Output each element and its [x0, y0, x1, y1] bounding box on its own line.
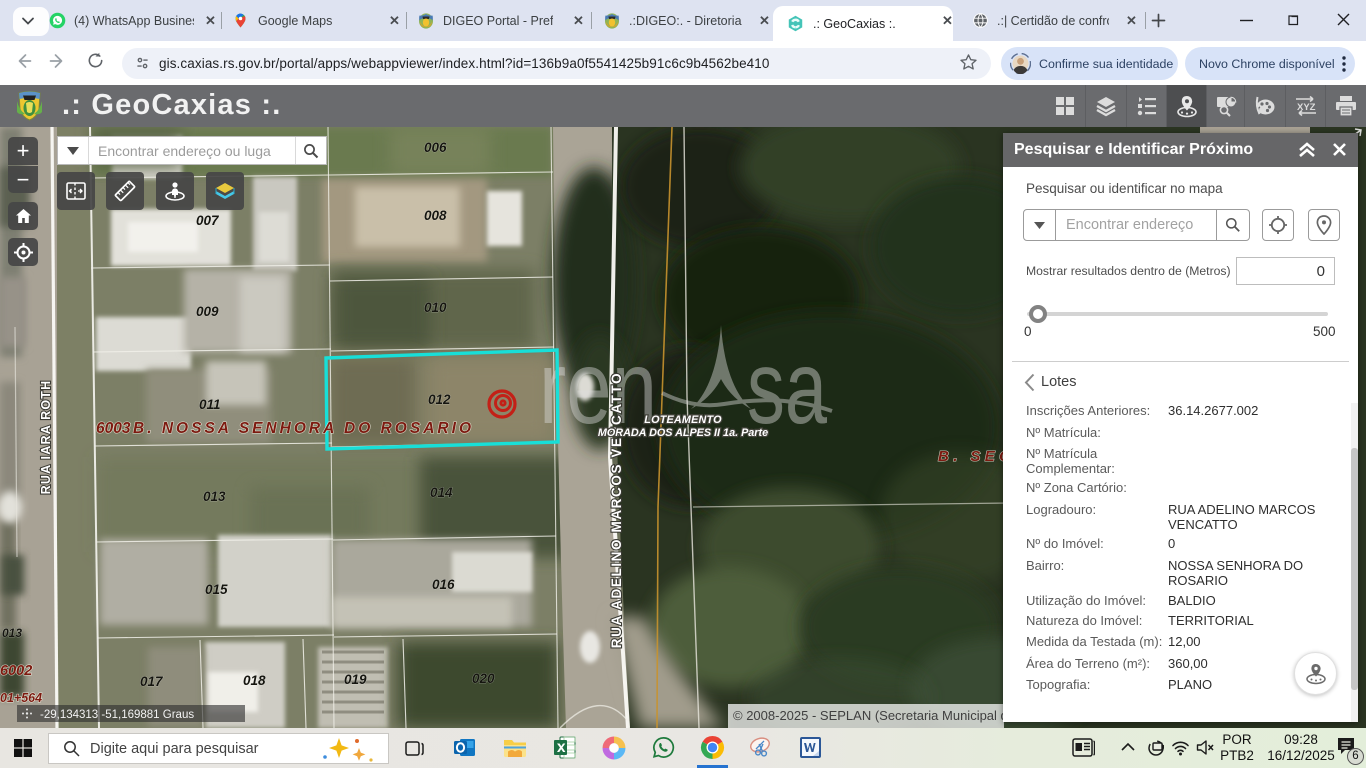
svg-text:© 2008-2025 - SEPLAN (Secretar: © 2008-2025 - SEPLAN (Secretaria Municip… — [733, 708, 1008, 723]
svg-text:-29,134313 -51,169881 Graus: -29,134313 -51,169881 Graus — [40, 709, 194, 721]
svg-text:013: 013 — [2, 626, 22, 640]
svg-text:LOTEAMENTO: LOTEAMENTO — [644, 414, 722, 426]
svg-text:RUA ADELINO MARCOS VENCATTO: RUA ADELINO MARCOS VENCATTO — [609, 372, 624, 648]
svg-text:009: 009 — [196, 304, 219, 319]
svg-text:015: 015 — [205, 582, 228, 597]
svg-text:018: 018 — [243, 673, 266, 688]
svg-text:013: 013 — [203, 489, 226, 504]
svg-text:011: 011 — [199, 397, 221, 412]
svg-text:01+564: 01+564 — [0, 691, 42, 705]
svg-text:RUA IARA ROTH: RUA IARA ROTH — [39, 380, 53, 495]
svg-text:007: 007 — [196, 213, 220, 228]
svg-text:006: 006 — [424, 140, 447, 155]
svg-text:012: 012 — [428, 392, 451, 407]
svg-text:020: 020 — [472, 671, 495, 686]
svg-text:6002: 6002 — [0, 663, 32, 679]
svg-text:019: 019 — [344, 672, 367, 687]
svg-text:016: 016 — [432, 577, 455, 592]
svg-text:014: 014 — [430, 485, 453, 500]
svg-text:008: 008 — [424, 208, 447, 223]
svg-text:017: 017 — [140, 674, 164, 689]
svg-text:6003: 6003 — [96, 420, 131, 437]
svg-text:010: 010 — [424, 300, 447, 315]
svg-text:MORADA DOS ALPES II 1a. Parte: MORADA DOS ALPES II 1a. Parte — [598, 427, 768, 439]
